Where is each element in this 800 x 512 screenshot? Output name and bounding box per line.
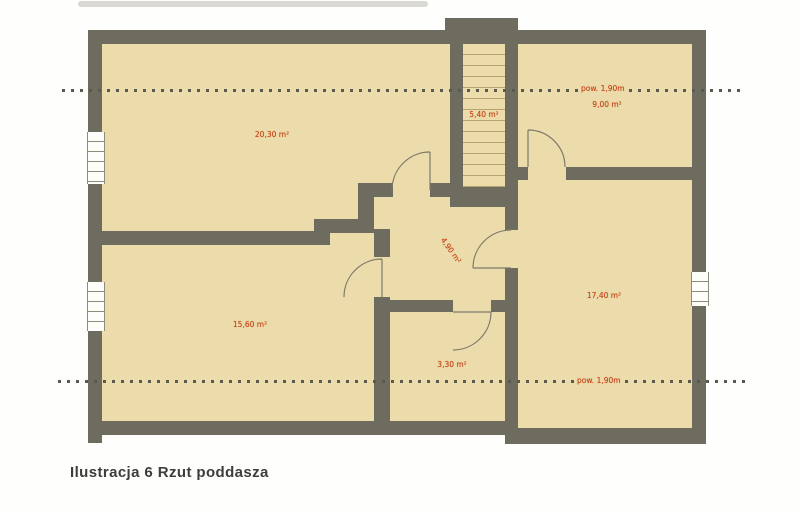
- area-label-staircase: 5,40 m²: [462, 110, 506, 119]
- area-label-small-room: 3,30 m²: [430, 360, 474, 369]
- wall-stair-left: [450, 44, 463, 207]
- height-label-upper: pow. 1,90m: [578, 84, 628, 93]
- area-label-top-right: 9,00 m²: [585, 100, 629, 109]
- floor-plan: 20,30 m² 5,40 m² pow. 1,90m 9,00 m² 4,90…: [0, 0, 800, 512]
- wall-topright-bottom-a: [518, 167, 528, 180]
- area-label-bottom-right: 17,40 m²: [580, 291, 628, 300]
- wall-small-room-right: [505, 312, 518, 428]
- wall-bottom-left-segment: [88, 421, 518, 435]
- window-right: [691, 272, 709, 306]
- wall-smallroom-top-a: [390, 300, 453, 312]
- wall-stair-bottom: [450, 187, 518, 207]
- wall-bottom-right-segment: [505, 428, 706, 444]
- wall-bottomleft-right-lower: [374, 297, 390, 421]
- window-left-upper: [87, 132, 105, 184]
- area-label-bottom-left: 15,60 m²: [226, 320, 274, 329]
- window-left-lower: [87, 282, 105, 331]
- wall-topright-bottom-b: [566, 167, 692, 180]
- wall-bottomleft-right-upper: [374, 229, 390, 257]
- area-label-top-left: 20,30 m²: [248, 130, 296, 139]
- figure-caption: Ilustracja 6 Rzut poddasza: [70, 464, 269, 481]
- scanned-page: 20,30 m² 5,40 m² pow. 1,90m 9,00 m² 4,90…: [0, 0, 800, 512]
- wall-top-stair-notch: [445, 18, 518, 32]
- wall-topleft-bottomleft-divider: [102, 231, 330, 245]
- wall-zig-h1b: [430, 183, 450, 197]
- wall-smallroom-top-b: [491, 300, 518, 312]
- height-label-lower: pow. 1,90m: [574, 376, 624, 385]
- wall-top: [88, 30, 706, 44]
- height-dotted-line-lower: [58, 380, 746, 383]
- height-dotted-line-upper: [62, 89, 746, 92]
